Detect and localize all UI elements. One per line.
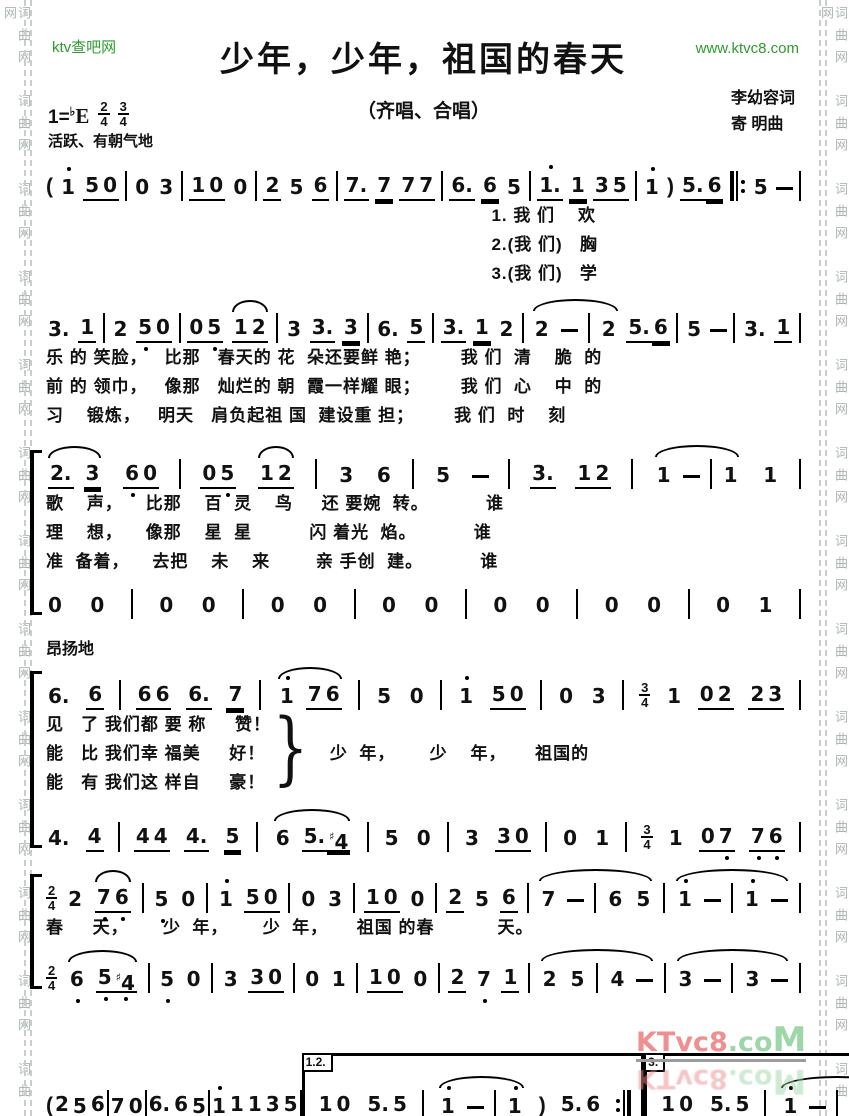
barline [438,963,440,993]
lyrics-line: 3.(我 们) 学 [491,259,801,288]
barline [288,883,290,913]
parenthesis: ) [539,1092,546,1116]
slur-arc: 33 [675,963,791,993]
note: 0 [157,592,175,619]
time-signature: 34 [641,823,652,851]
note: 1 [667,825,685,852]
note: 3 [743,966,761,993]
slur-arc: 76 [93,884,133,913]
note: 1 [228,1091,246,1116]
note: 6 [86,681,104,710]
lyrics-line: 理 想， 像那 星 星 闪 着光 焰。 谁 [46,518,801,547]
beam-group: 12 [258,460,294,489]
note: 1 [189,172,207,201]
lyrics-continuation: 少 年， 少 年， 祖国的 [316,710,801,797]
note: 7 [109,1093,127,1116]
beam-group: 35 [593,172,629,201]
note: 6 [154,681,172,710]
note: 5 [685,316,703,343]
note: 0 [409,886,427,913]
time-signature: 34 [118,100,129,128]
note: 2. [48,460,74,489]
beam-group: 07 [699,823,735,852]
beam-group: 10 [367,964,403,993]
barline [206,883,208,913]
slur-arc: 65♯4 [66,964,139,993]
note: 1 [569,172,587,201]
barline [181,171,183,201]
note: 0 [269,592,287,619]
barline [836,1090,838,1116]
barline [527,883,529,913]
note: 0 [187,314,205,343]
note: 1 [217,886,235,913]
note: 1 [258,460,276,489]
note: 7 [475,966,493,993]
note: 5 [136,314,154,343]
note: 0 [422,592,440,619]
note: 0 [200,460,218,489]
note: 6 [606,886,624,913]
note: 0 [299,886,317,913]
note: 0 [382,884,400,913]
note: 3. [530,460,556,489]
note: 6 [89,1091,107,1116]
watermark-reflection: KTvc8.coM [636,1064,806,1095]
dashed-border-right-inner [819,0,821,1116]
note: 6 [136,681,154,710]
note: 5 [611,172,629,201]
note: 2 [263,172,281,201]
note: 0 [101,172,119,201]
note: 3 [463,825,481,852]
time-signature: 24 [46,964,57,992]
beam-group: 12 [575,460,611,489]
music-line: 00000000000001 [46,588,801,619]
note: 5 [244,884,262,913]
barline [131,589,133,619]
note: 1 [756,592,774,619]
note: 1 [665,683,683,710]
note: 1 [439,1093,457,1116]
time-signature: 24 [98,100,109,128]
barline [367,313,369,343]
barline [731,883,733,913]
note: 2 [533,316,551,343]
note: 0 [133,174,151,201]
note: 6 [172,1091,190,1116]
note: 0 [311,592,329,619]
parenthesis: ( [46,173,53,201]
note: 1 [78,314,96,343]
note: 7 [306,681,324,710]
barline [528,963,530,993]
slur-arc: 2.3 [46,460,103,489]
barline [622,680,624,710]
lyrics-line: 1. 我 们 欢 [491,201,801,230]
dashed-border-left-outer [24,0,26,1116]
note: 1 [246,1091,264,1116]
note: 6. [147,1091,173,1116]
lyrics-line: 前 的 领巾， 像那 灿烂的 朝 霞一样耀 眼； 我 们 心 中 的 [46,372,801,401]
note: 0 [154,314,172,343]
slur-arc: 11 [437,1090,526,1116]
slur-arc: 22 [531,313,620,343]
barline [179,459,181,489]
barline [315,459,317,489]
beam-group: 77 [399,172,435,201]
note: 1 [722,462,740,489]
note: 6 [652,314,670,343]
note: ♯4 [327,823,350,852]
beam-group: 02 [698,681,734,710]
note: 2 [53,1091,71,1116]
barline [733,313,735,343]
barline [118,822,120,852]
note: 3 [677,966,695,993]
barline [356,963,358,993]
beam-group: 5.6 [680,172,723,201]
note: 0 [266,964,284,993]
beam-group: 50 [83,172,119,201]
beam-group: 5.5 [365,1091,408,1116]
barline [631,459,633,489]
beam-group: 12 [232,314,268,343]
section-tempo-marking: 昂扬地 [46,635,801,659]
note: 7 [539,886,557,913]
barline [447,822,449,852]
barline [710,459,712,489]
lyrics-line: 习 锻炼， 明天 肩负起祖 国 建设重 担； 我 们 时 刻 [46,401,801,430]
barline [255,171,257,201]
lyrics-block: 春 天， 少 年， 少 年， 祖国 的春 天。 [46,913,801,942]
note: 3 [766,681,784,710]
barline [540,680,542,710]
note: 1 [59,174,77,201]
note: 6 [113,884,131,913]
barline [731,963,733,993]
held-note-dash [809,1106,826,1109]
barline [635,171,637,201]
note: 0 [408,683,426,710]
barline [625,822,627,852]
note: 0 [508,681,526,710]
barline [799,313,801,343]
sharp-accidental: ♯ [329,830,334,843]
note: 0 [561,825,579,852]
note: 5 [505,174,523,201]
note: 0 [380,592,398,619]
side-watermark-text-right: 词曲网 词曲网 词曲网 词曲网 词曲网 词曲网 词曲网 词曲网 词曲网 词曲网 … [819,6,847,1116]
lyrics-block: 1. 我 们 欢2.(我 们) 胸3.(我 们) 学 [491,201,801,288]
note: 4 [134,823,152,852]
beam-group: 50 [490,681,526,710]
slur-arc: 12 [256,460,296,489]
note: 5. [302,823,328,852]
music-line: (150031002567.7776.651.1351)5.65 [46,170,801,201]
beam-group: 23 [748,681,784,710]
note: 6 [584,1091,602,1116]
note: 5 [224,823,242,852]
note: 3 [222,966,240,993]
note: 5 [375,683,393,710]
note: 6 [312,172,330,201]
note: 1 [364,884,382,913]
sheet-music-page: 词曲网 词曲网 词曲网 词曲网 词曲网 词曲网 词曲网 词曲网 词曲网 词曲网 … [0,0,849,1116]
lyrics-line: 能 有 我们这 样自 豪！ [46,768,271,797]
note: 2 [716,681,734,710]
note: 3 [590,683,608,710]
note: 3 [264,1091,282,1116]
barline [494,1090,496,1116]
note: 5 [218,460,236,489]
note: 6 [68,966,86,993]
barline [441,171,443,201]
held-note-dash [704,899,721,902]
beam-group: 5♯4 [96,964,137,993]
note: 5 [71,1093,89,1116]
note: 2 [276,460,294,489]
note: 0 [200,592,218,619]
held-note-dash [567,899,584,902]
note: 0 [46,592,64,619]
barline [211,963,213,993]
dashed-border-right-outer [825,0,827,1116]
note: 2 [498,316,516,343]
note: 1 [506,1093,524,1116]
note: 2 [112,316,130,343]
note: 0 [645,592,663,619]
music-line: 2.36005123653.12111 [46,444,801,489]
barline [435,883,437,913]
barline [522,313,524,343]
lyrics-line: 少 年， 少 年， 祖国的 [330,739,589,768]
key-text: 1=♭E [48,104,89,129]
note: 1 [643,174,661,201]
barline [148,963,150,993]
system-bracket [30,450,42,615]
note: 7 [226,681,244,710]
note: 6 [375,462,393,489]
barline [465,589,467,619]
barline [596,963,598,993]
beam-group: 76 [306,681,342,710]
lyrics-line: 2.(我 们) 胸 [491,230,801,259]
note: 4 [86,823,104,852]
note: 7. [344,172,370,201]
note: 5 [407,314,425,343]
note: 6 [274,825,292,852]
note: 7 [717,823,735,852]
note: 4. [184,823,210,852]
note: 0 [603,592,621,619]
note: 0 [127,1093,145,1116]
note: 6. [449,172,475,201]
note: 0 [262,884,280,913]
note: 1 [676,886,694,913]
time-signature: 24 [46,884,57,912]
note: 2 [541,966,559,993]
note: 6. [186,681,212,710]
barline [256,822,258,852]
music-line: 3.1250051233.36.53.12225.653.1 [46,298,801,343]
note: 5 [434,462,452,489]
barline [103,313,105,343]
barline [529,171,531,201]
beam-group: 66 [136,681,172,710]
beam-group: 05 [187,314,223,343]
lyrics-line: 春 天， 少 年， 少 年， 祖国 的春 天。 [46,913,801,942]
beam-group: 5.♯4 [302,823,351,852]
note: 7 [375,172,393,201]
note: 1 [655,462,673,489]
note: 6 [123,460,141,489]
note: 1 [457,683,475,710]
note: 3 [84,460,102,489]
note: 3. [742,316,768,343]
lyrics-column: 见 了 我们都 要 称 赞！能 比 我们幸 福美 好！能 有 我们这 样自 豪！ [46,710,271,797]
note: 6 [706,172,724,201]
barline [293,963,295,993]
note: 0 [335,1091,353,1116]
note: 5 [205,314,223,343]
system-bracket [30,671,42,848]
barline [799,963,801,993]
note: 3 [337,462,355,489]
held-note-dash [710,329,727,332]
note: 3. [46,316,72,343]
note: 5. [559,1091,585,1116]
barline [664,963,666,993]
score-header: ktv查吧网 少年，少年，祖国的春天 www.ktvc8.com （齐唱、合唱）… [46,0,801,158]
beam-group: 10 [364,884,400,913]
slur-arc: 12 [230,314,270,343]
note: 1. [537,172,563,201]
barline [412,459,414,489]
note: 7 [95,884,113,913]
music-line: 2465♯4503300110027125433 [46,948,801,993]
note: 2 [593,460,611,489]
barline [440,680,442,710]
site-url-right: www.ktvc8.com [696,40,799,57]
barline [358,680,360,710]
note: 5 [569,966,587,993]
beam-group: 76 [749,823,785,852]
slur-arc: 11 [674,883,790,913]
barline [545,822,547,852]
tempo-marking: 活跃、有朝气地 [48,130,153,151]
time-signature: 34 [639,681,650,709]
note: 0 [141,460,159,489]
note: 0 [411,966,429,993]
note: 2 [250,314,268,343]
composer: 寄 明曲 [731,112,795,138]
note: 5 [752,174,770,201]
note: 0 [185,966,203,993]
credits: 李幼容词 寄 明曲 [731,86,795,138]
held-note-dash [771,979,788,982]
barline [259,680,261,710]
note: 3 [326,886,344,913]
note: 5 [282,1091,300,1116]
barline [799,589,801,619]
note: 0 [231,174,249,201]
slur-arc: 765 [537,883,654,913]
note: 2 [748,681,766,710]
note: 0 [303,966,321,993]
note: 3. [441,314,467,343]
barline [799,459,801,489]
note: 5 [158,966,176,993]
score-content: ktv查吧网 少年，少年，祖国的春天 www.ktvc8.com （齐唱、合唱）… [46,0,801,1116]
note: 0 [534,592,552,619]
note: 0 [698,681,716,710]
note: 5 [96,964,114,993]
music-line: 4.4444.565.♯450330013410776 [46,807,801,852]
held-note-dash [776,187,793,190]
note: 3 [285,316,303,343]
voice-system: 6.6666.717650150033410223见 了 我们都 要 称 赞！能… [46,665,801,852]
barline [799,680,801,710]
note: 7 [417,172,435,201]
slur-arc: 65.♯4 [272,823,353,852]
note: 5 [490,681,508,710]
beam-group: 60 [123,460,159,489]
note: 1 [774,314,792,343]
barline [142,883,144,913]
note: 1 [317,1091,335,1116]
note: 3. [310,314,336,343]
barline [799,171,801,201]
barline [730,171,746,201]
beam-group: 44 [134,823,170,852]
barline [432,313,434,343]
note: 5. [680,172,706,201]
beam-group: 50 [136,314,172,343]
barline [336,171,338,201]
held-note-dash [704,979,721,982]
beam-group: 5.6 [559,1091,602,1116]
lyricist: 李幼容词 [731,86,795,112]
barline [422,1090,424,1116]
note: 0 [513,823,531,852]
note: 5 [153,886,171,913]
note: 4 [608,966,626,993]
note: 0 [207,172,225,201]
note: 6 [500,884,518,913]
note: 3 [342,314,360,343]
note: 2 [446,884,464,913]
beam-group: 10 [189,172,225,201]
held-note-dash [561,329,578,332]
barline [354,589,356,619]
note: 1 [473,314,491,343]
beam-group: 30 [495,823,531,852]
note: 1 [501,964,519,993]
parenthesis: ) [667,173,674,201]
barline [508,459,510,489]
note: 7 [399,172,417,201]
system-bracket [30,874,42,989]
held-note-dash [683,475,700,478]
lyrics-line: 歌 声， 比那 百 灵 鸟 还 要婉 转。 谁 [46,489,801,518]
lyrics-line: 能 比 我们幸 福美 好！ [46,739,271,768]
note: 1 [367,964,385,993]
barline [576,589,578,619]
barline [799,883,801,913]
note: 6. [375,316,401,343]
note: 5 [288,174,306,201]
